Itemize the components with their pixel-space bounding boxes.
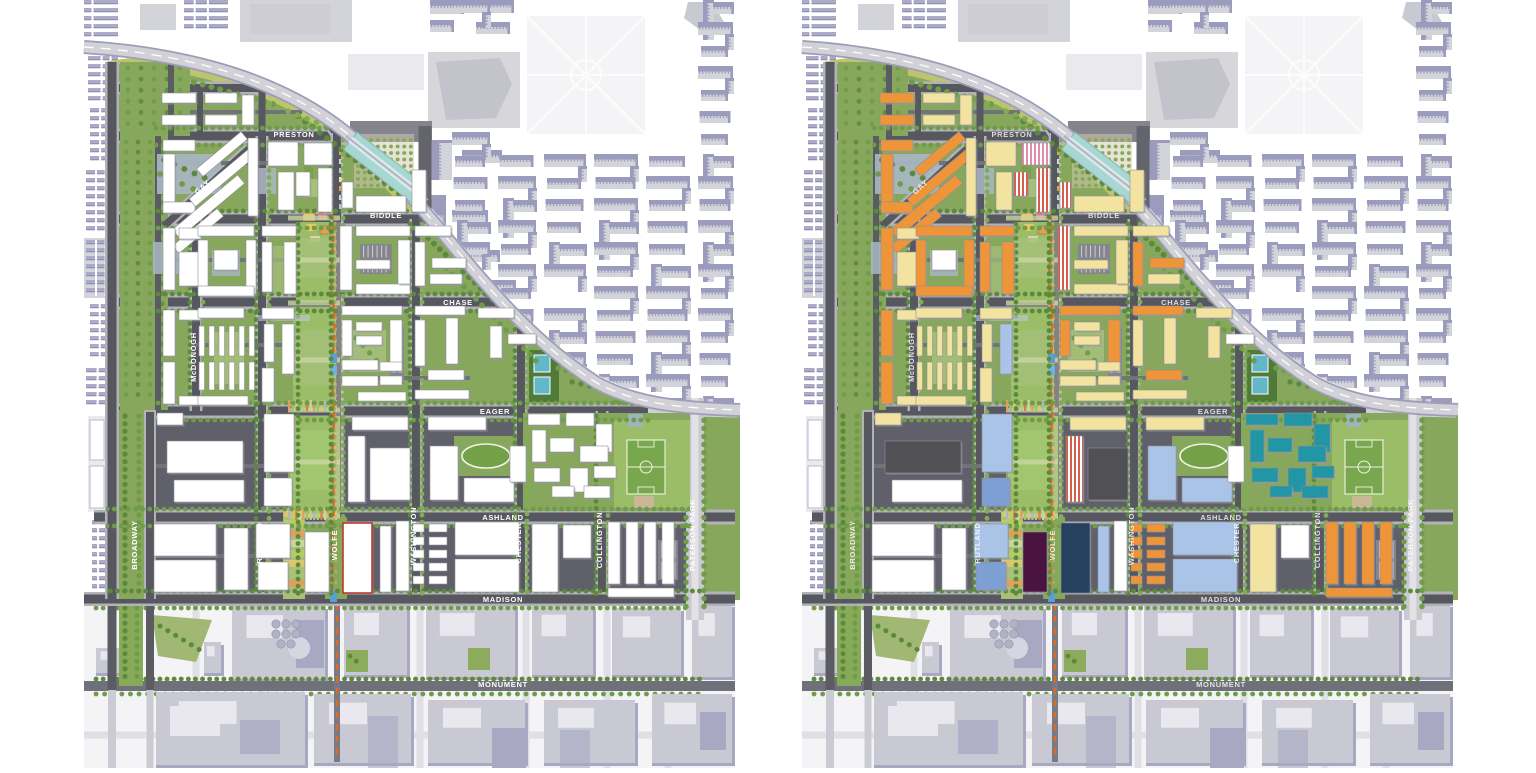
- svg-text:WOLFE: WOLFE: [330, 530, 339, 561]
- svg-text:RUTLAND: RUTLAND: [973, 522, 982, 563]
- svg-text:McDONOGH: McDONOGH: [907, 332, 916, 382]
- svg-text:WASHINGTON: WASHINGTON: [1127, 507, 1136, 566]
- svg-text:ASHLAND: ASHLAND: [1200, 513, 1242, 522]
- svg-text:CHASE: CHASE: [1161, 298, 1191, 307]
- svg-text:MONUMENT: MONUMENT: [478, 680, 528, 689]
- svg-text:MONUMENT: MONUMENT: [1196, 680, 1246, 689]
- svg-text:McDONOGH: McDONOGH: [189, 332, 198, 382]
- svg-text:COLLINGTON: COLLINGTON: [1313, 512, 1322, 568]
- svg-text:PATERSON PARK: PATERSON PARK: [688, 499, 697, 571]
- svg-text:EAGER: EAGER: [480, 407, 510, 416]
- svg-text:CHESTER: CHESTER: [1232, 523, 1241, 564]
- svg-text:PRESTON: PRESTON: [273, 130, 314, 139]
- svg-text:WOLFE: WOLFE: [1048, 530, 1057, 561]
- svg-text:WASHINGTON: WASHINGTON: [409, 507, 418, 566]
- svg-text:COLLINGTON: COLLINGTON: [595, 512, 604, 568]
- svg-text:RUTLAND: RUTLAND: [255, 522, 264, 563]
- svg-text:CHESTER: CHESTER: [514, 523, 523, 564]
- svg-text:BROADWAY: BROADWAY: [848, 520, 857, 570]
- svg-text:ASHLAND: ASHLAND: [482, 513, 524, 522]
- svg-text:CHASE: CHASE: [443, 298, 473, 307]
- svg-text:EAGER: EAGER: [1198, 407, 1228, 416]
- svg-text:BIDDLE: BIDDLE: [370, 211, 402, 220]
- svg-text:PATERSON PARK: PATERSON PARK: [1406, 499, 1415, 571]
- svg-text:MADISON: MADISON: [1201, 595, 1241, 604]
- svg-text:MADISON: MADISON: [483, 595, 523, 604]
- svg-text:BIDDLE: BIDDLE: [1088, 211, 1120, 220]
- svg-text:PRESTON: PRESTON: [991, 130, 1032, 139]
- svg-text:BROADWAY: BROADWAY: [130, 520, 139, 570]
